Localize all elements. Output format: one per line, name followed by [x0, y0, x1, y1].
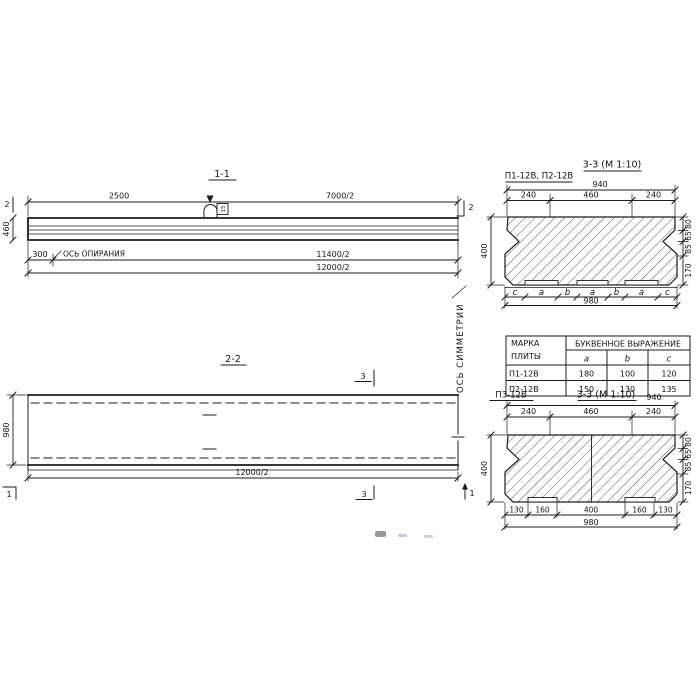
letter-a: a	[639, 288, 644, 298]
dim-130: 130	[509, 506, 524, 515]
bottom-recess	[525, 281, 558, 286]
dim-65: 65	[684, 449, 693, 459]
dim-980: 980	[2, 422, 11, 437]
cell-a: 180	[579, 370, 594, 379]
dim-400: 400	[584, 506, 599, 515]
dim-460: 460	[583, 191, 598, 200]
strand-lines	[28, 226, 458, 234]
bottom-recess	[625, 498, 655, 503]
cut-mark-3-bottom: 3	[361, 490, 366, 499]
dim-170: 170	[684, 481, 693, 496]
plate-marks-label: П1-12В, П2-12В	[505, 172, 574, 182]
dim-160: 160	[632, 506, 647, 515]
hook-label: 15	[221, 205, 227, 212]
cell-b: 100	[620, 370, 635, 379]
cut-mark-2-left: 2	[4, 200, 9, 209]
cross-section-p1-p2: 3-3 (М 1:10) П1-12В, П2-12В 940 240 460 …	[480, 160, 693, 309]
scan-artifact	[398, 534, 407, 537]
extension-lines	[28, 196, 458, 278]
extension-lines	[487, 217, 506, 285]
leader-line	[53, 251, 61, 259]
section-3-3-title: 3-3 (М 1:10)	[577, 390, 636, 401]
table-row: П1-12В 180 100 120	[509, 370, 677, 379]
letter-c: c	[665, 288, 670, 298]
letter-c: c	[513, 288, 518, 298]
dim-12000-2: 12000/2	[316, 263, 349, 272]
table-header-marka: МАРКА	[511, 339, 540, 348]
center-dashes	[203, 415, 464, 449]
scan-artifact	[375, 531, 386, 537]
dim-170: 170	[684, 263, 693, 278]
section-2-2-title: 2-2	[225, 354, 241, 365]
cross-section-p3: П3-12В 3-3 (М 1:10) 940 240 460 240 400 …	[480, 390, 693, 531]
dim-240: 240	[646, 191, 661, 200]
dim-240: 240	[646, 407, 661, 416]
table-header-plity: ПЛИТЫ	[511, 352, 541, 361]
dim-400: 400	[480, 243, 489, 258]
dim-80: 80	[684, 437, 693, 447]
col-header-a: a	[584, 355, 589, 365]
hidden-lines	[31, 403, 455, 458]
lifting-hook	[204, 205, 217, 217]
dim-300: 300	[32, 250, 47, 259]
beam-outline	[28, 218, 458, 240]
dim-7000-2: 7000/2	[326, 192, 354, 201]
extension-lines	[487, 435, 506, 502]
dim-2500: 2500	[109, 192, 129, 201]
col-header-b: b	[625, 355, 630, 365]
bottom-recess	[528, 498, 557, 503]
dim-80: 80	[684, 219, 693, 229]
dim-130: 130	[658, 506, 673, 515]
dim-65: 65	[684, 231, 693, 241]
slab-sides	[28, 395, 458, 470]
section-body-hatched	[505, 217, 677, 285]
leader-line	[452, 286, 466, 298]
section-body-hatched	[505, 435, 677, 502]
cut-mark-2-right: 2	[468, 203, 473, 212]
dim-980: 980	[583, 297, 598, 306]
cut-mark-3-top: 3	[360, 372, 365, 381]
dim-85: 85	[684, 462, 693, 472]
dim-11400-2: 11400/2	[316, 250, 349, 259]
plate-mark-label: П3-12В	[495, 391, 527, 401]
dim-12000-2: 12000/2	[235, 468, 268, 477]
dim-460: 460	[583, 407, 598, 416]
dim-400: 400	[480, 461, 489, 476]
section-1-1: 1-1 2500 7000/2 15 2 460 300 ОСЬ ОПИРАНИ…	[2, 169, 474, 278]
section-2-2: 2-2 980 12000/2 3 3 1 1	[2, 354, 475, 500]
dim-160: 160	[535, 506, 550, 515]
drawing-sheet: 1-1 2500 7000/2 15 2 460 300 ОСЬ ОПИРАНИ…	[0, 0, 700, 700]
dim-240: 240	[521, 191, 536, 200]
table-header-letters: БУКВЕННОЕ ВЫРАЖЕНИЕ	[575, 340, 681, 349]
section-3-3-title: 3-3 (М 1:10)	[583, 160, 642, 171]
cell-c: 135	[661, 385, 676, 394]
technical-drawing: 1-1 2500 7000/2 15 2 460 300 ОСЬ ОПИРАНИ…	[0, 0, 700, 700]
dim-940: 940	[646, 393, 661, 402]
dim-940: 940	[592, 180, 607, 189]
section-1-1-title: 1-1	[214, 169, 230, 180]
col-header-c: c	[667, 355, 672, 365]
cut-mark-1-right: 1	[469, 489, 474, 498]
dim-240: 240	[521, 407, 536, 416]
cell-mark: П1-12В	[509, 370, 539, 379]
symmetry-axis-label: ОСЬ СИММЕТРИИ	[456, 303, 466, 393]
letter-b: b	[614, 288, 619, 298]
dim-height-460: 460	[2, 221, 11, 236]
cell-c: 120	[661, 370, 676, 379]
dim-980: 980	[583, 518, 598, 527]
cut-mark-arrow	[462, 483, 468, 490]
slab-edges	[28, 395, 458, 465]
letter-a: a	[539, 288, 544, 298]
bottom-recess	[625, 281, 658, 286]
letter-b: b	[565, 288, 570, 298]
cut-mark-1-left: 1	[6, 490, 11, 499]
scan-artifact	[424, 535, 433, 538]
dim-85: 85	[684, 244, 693, 254]
bottom-recess	[577, 281, 608, 286]
symmetry-axis: ОСЬ СИММЕТРИИ	[452, 286, 466, 393]
support-axis-label: ОСЬ ОПИРАНИЯ	[63, 250, 125, 259]
marks-table: МАРКА ПЛИТЫ БУКВЕННОЕ ВЫРАЖЕНИЕ a b c П1…	[506, 336, 690, 396]
